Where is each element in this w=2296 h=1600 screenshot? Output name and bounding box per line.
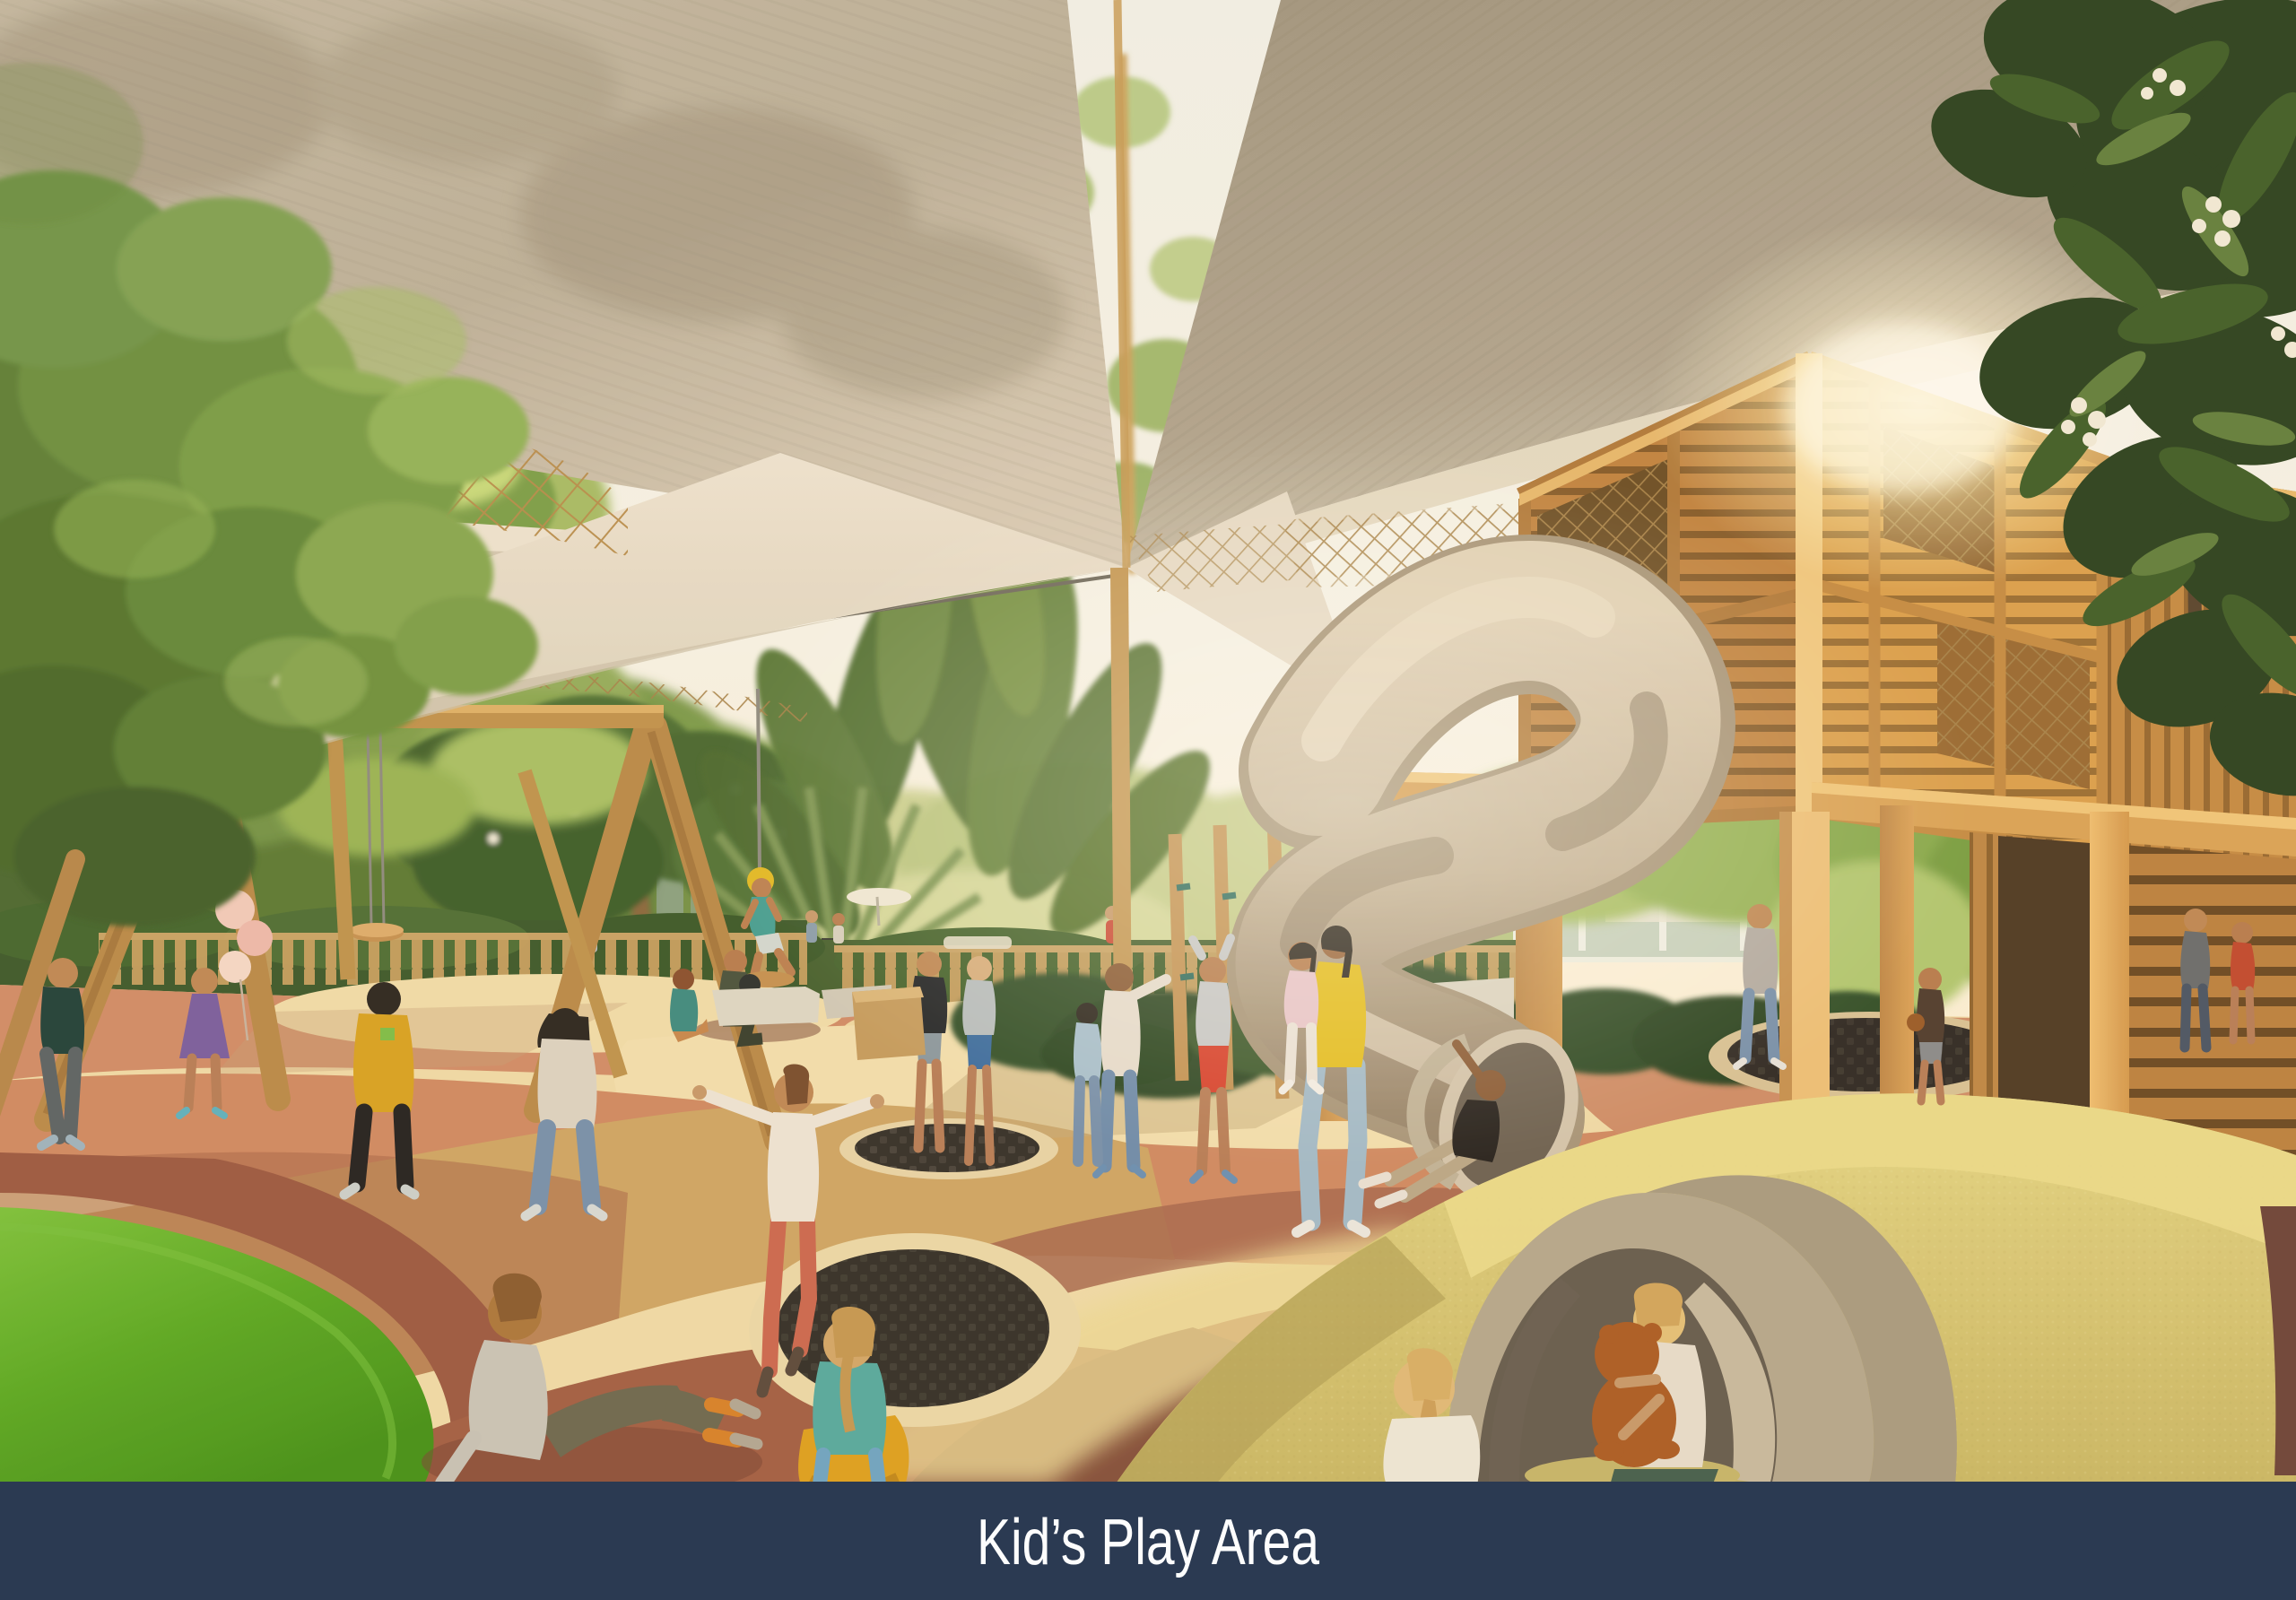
- svg-text:Kid’s Play Area: Kid’s Play Area: [977, 1507, 1320, 1578]
